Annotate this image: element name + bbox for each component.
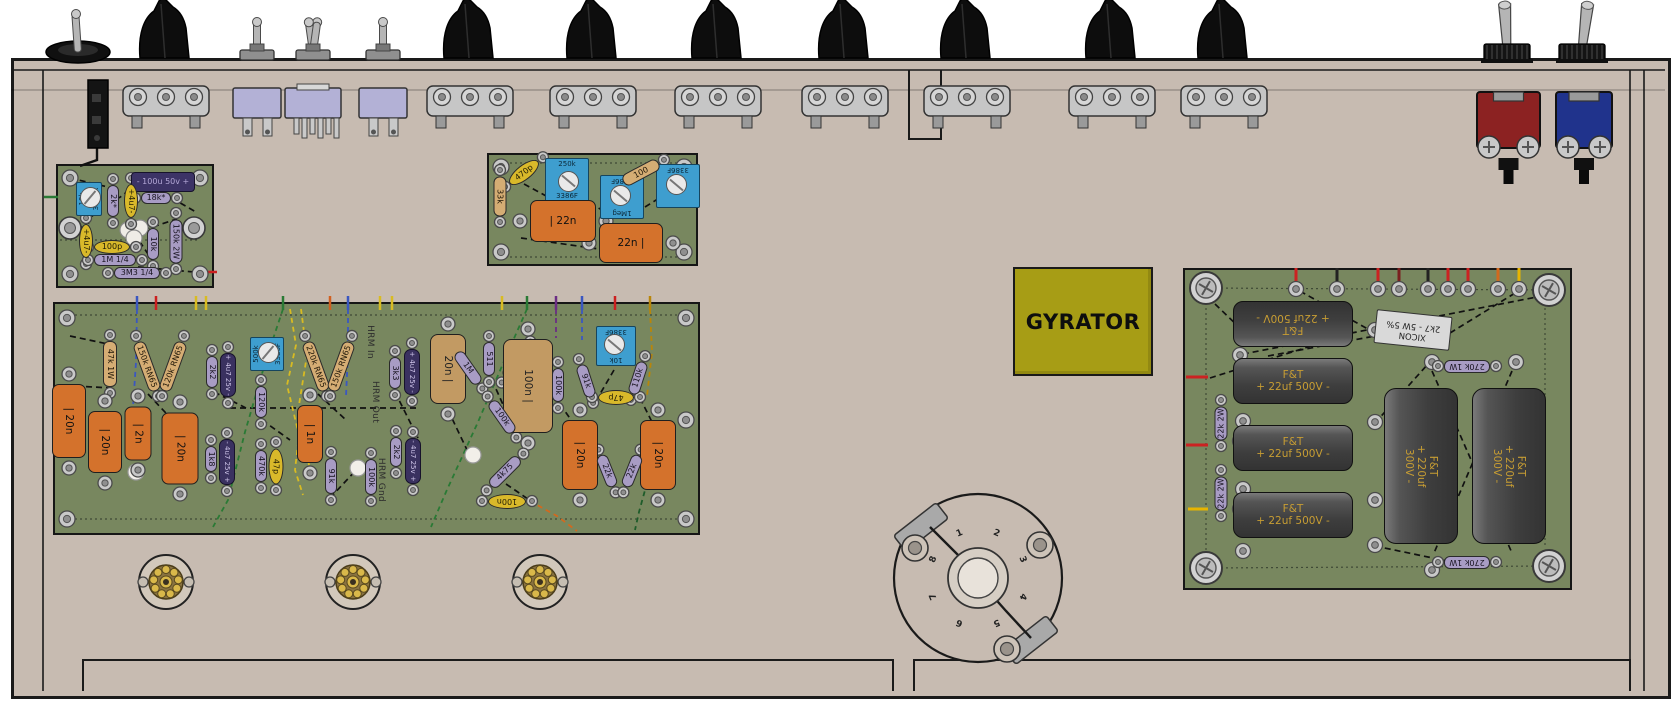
switch-leg [294,118,299,134]
eyelet-hole [621,490,626,495]
eyelet-hole [485,394,490,399]
eyelet-hole [307,470,313,476]
socket-pin [353,590,361,598]
eyelet-hole [174,211,179,216]
socket-key [350,579,356,585]
eyelet-hole [643,354,648,359]
eyelet-hole [1372,327,1379,334]
eyelet-hole [328,394,333,399]
eyelet-hole [86,258,91,263]
eyelet-hole [1237,352,1244,359]
pot-foot [1078,116,1088,128]
chicken-head-knob [444,0,493,58]
eyelet-hole [445,321,451,327]
pot-foot [132,116,142,128]
eyelet-hole [129,222,134,227]
eyelet-hole [1436,560,1441,565]
eyelet-hole [1372,497,1379,504]
eyelet-hole [655,407,661,413]
pot-foot [991,116,1001,128]
pot-lug-hole [1137,94,1144,101]
eyelet-hole [259,378,264,383]
toggle-tip [379,18,388,27]
post-tip [1504,170,1514,184]
eyelet-hole [393,349,398,354]
socket-pin [548,576,556,584]
eyelet-hole [393,393,398,398]
eyelet-hole [525,326,531,332]
eyelet-hole [209,476,214,481]
eyelet-hole [108,333,113,338]
hookup-wire [506,484,528,499]
eyelet-hole [655,497,661,503]
socket-pin [532,590,540,598]
eyelet-hole [1219,398,1224,403]
chicken-head-knob [1198,0,1247,58]
amp-chassis-layout: 12345678 - 100u 50v +10k3296X2k*+4u7-18k… [0,0,1676,721]
eyelet-hole [410,341,415,346]
eyelet-hole [1516,286,1523,293]
socket-pin [540,590,548,598]
pot-foot [684,116,694,128]
hookup-wire [590,203,607,213]
eyelet-hole [106,271,111,276]
chicken-head-knob [941,0,990,58]
eyelet-hole [274,440,279,445]
switch-leg [326,118,331,134]
eyelet-hole [503,184,508,189]
pot-lug-hole [992,94,999,101]
post-hex [1499,158,1519,170]
switch-body [233,88,281,118]
pot-lug-hole [814,94,821,101]
eyelet-hole [210,392,215,397]
pot-foot [436,116,446,128]
eyelet-hole [1219,514,1224,519]
toggle-washer [1556,59,1608,63]
pot-foot [1248,116,1258,128]
hookup-wire [1210,333,1352,378]
socket-pin [337,576,345,584]
eyelet-hole [102,398,108,404]
eyelet-hole [445,411,451,417]
eyelet-hole [497,248,504,255]
eyelet-hole [680,163,687,170]
eyelet-hole [577,497,583,503]
eyelet-hole [134,333,139,338]
post-bracket [1569,92,1599,101]
switch-body [285,88,341,118]
gyrator-label: GYRATOR [1013,267,1153,376]
pot-foot [1136,116,1146,128]
toggle-collar [250,44,264,51]
eyelet-hole [411,488,416,493]
eyelet-hole [576,357,581,362]
eyelet-hole [487,380,492,385]
eyelet-hole [133,196,138,201]
bottom-left-tab [83,660,893,691]
switch-leg [334,118,339,138]
hookup-wire [492,380,518,438]
pot-foot [494,116,504,128]
pot-foot [811,116,821,128]
socket-pin [360,584,368,592]
eyelet-hole [259,422,264,427]
toggle-tip [253,18,262,27]
jack-hole [94,135,100,141]
wiring-overlay: 12345678 [0,0,1676,721]
signal-wire [346,309,348,396]
eyelet-hole [1495,286,1502,293]
jack-wire [80,148,97,166]
eyelet-hole [1372,542,1379,549]
socket-pin [154,568,162,576]
eyelet-hole [480,386,485,391]
eyelet-hole [680,248,687,255]
pot-lug-hole [1249,94,1256,101]
eyelet-hole [369,451,374,456]
eyelet-hole [682,416,689,423]
eyelet-hole [66,371,72,377]
switch-leg-hole [265,130,270,135]
post-tip [1579,170,1589,184]
toggle-tip [304,18,313,27]
eyelet-hole [66,465,72,471]
eyelet-hole [164,271,169,276]
eyelet-hole [1465,286,1472,293]
toggle-washer [1481,59,1533,63]
pot-lug-hole [743,94,750,101]
eyelet-hole [111,221,116,226]
chicken-head-knob [1086,0,1135,58]
socket-screw [558,577,568,587]
pot-lug-hole [1109,94,1116,101]
eyelet-hole [498,168,503,173]
socket-key [537,579,543,585]
hookup-wire [645,197,661,207]
eyelet-hole [66,174,73,181]
big-toggle-lever [1499,4,1513,47]
eyelet-hole [410,399,415,404]
jack-contact [92,116,101,124]
pot-foot [190,116,200,128]
eyelet-hole [259,442,264,447]
rotary-lug-hole [1001,643,1014,656]
eyelet-hole [1240,486,1247,493]
eyelet-hole [102,480,108,486]
eyelet-hole [174,267,179,272]
eyelet-hole [210,348,215,353]
socket-key [163,579,169,585]
switch-leg [302,118,307,138]
pot-lug-hole [439,94,446,101]
eyelet-hole [259,486,264,491]
socket-pin [174,576,182,584]
hookup-wire [70,336,108,344]
eyelet-hole [369,499,374,504]
pot-lug-hole [1221,94,1228,101]
eyelet-hole [682,314,689,321]
switch-leg-hole [391,130,396,135]
chicken-head-knob [819,0,868,58]
eyelet-hole [1219,444,1224,449]
eyelet-hole [226,345,231,350]
eyelet-hole [209,438,214,443]
eyelet-hole [1429,567,1436,574]
eyelet-hole [160,394,165,399]
eyelet-hole [225,489,230,494]
pot-lug-hole [842,94,849,101]
chicken-head-knob [140,0,189,58]
eyelet-hole [1240,548,1247,555]
rotary-hub-inner [958,558,998,598]
big-toggle-lever [1577,4,1594,47]
eyelet-hole [525,440,531,446]
pot-lug-hole [1193,94,1200,101]
eyelet-hole [177,399,183,405]
eyelet-hole [111,177,116,182]
post-hex [1574,158,1594,170]
eyelet-hole [329,498,334,503]
eyelet-hole [177,491,183,497]
signal-wire [530,501,577,531]
power-switch-tip [72,10,81,19]
pot-lug-hole [715,94,722,101]
eyelet-hole [63,314,70,321]
rotary-lug-hole [909,542,922,555]
pot-lug-hole [687,94,694,101]
eyelet-hole [225,431,230,436]
socket-pin [361,576,369,584]
chicken-head-knob [567,0,616,58]
eyelet-hole [540,155,545,160]
rotary-lug-hole [1034,539,1047,552]
eyelet-hole [135,467,141,473]
socket-pin [338,584,346,592]
pot-lug-hole [964,94,971,101]
pot-lug-hole [1081,94,1088,101]
hookup-wire [1432,371,1512,553]
eyelet-hole [1436,364,1441,369]
socket-pin [547,584,555,592]
eyelet-hole [1219,468,1224,473]
eyelet-hole [349,333,354,338]
socket-pin [166,590,174,598]
socket-pin [173,584,181,592]
eyelet-hole [1334,286,1341,293]
socket-screw [512,577,522,587]
eyelet-hole [528,339,533,344]
eyelet-hole [274,488,279,493]
eyelet-hole [517,218,523,224]
eyelet-hole [411,430,416,435]
pot-lug-hole [467,94,474,101]
socket-pin [524,576,532,584]
solder-blob [350,460,366,476]
eyelet-hole [556,360,561,365]
eyelet-hole [181,333,186,338]
switch-body [359,88,407,118]
socket-pin [349,566,357,574]
socket-pin [162,566,170,574]
socket-screw [371,577,381,587]
eyelet-hole [151,220,156,225]
eyelet-hole [1375,286,1382,293]
socket-pin [536,566,544,574]
socket-pin [357,568,365,576]
pot-foot [742,116,752,128]
eyelet-hole [514,435,519,440]
eyelet-hole [521,451,526,456]
eyelet-hole [487,334,492,339]
socket-pin [151,584,159,592]
socket-pin [341,568,349,576]
hookup-wire [1375,364,1428,423]
hookup-wire [1434,371,1512,553]
switch-leg [318,118,323,138]
eyelet-hole [1396,286,1403,293]
eyelet-hole [603,218,609,224]
socket-screw [184,577,194,587]
eyelet-hole [394,429,399,434]
pot-lug-hole [163,94,170,101]
eyelet-hole [66,270,73,277]
pot-foot [933,116,943,128]
eyelet-hole [498,220,503,225]
pot-lug-hole [590,94,597,101]
switch-leg-hole [245,130,250,135]
solder-blob [465,447,481,463]
eyelet-hole [530,499,535,504]
eyelet-hole [226,401,231,406]
eyelet-hole [590,395,595,400]
eyelet-hole [1494,560,1499,565]
pot-lug-hole [562,94,569,101]
eyelet-hole [596,447,601,452]
eyelet-hole [140,258,145,263]
eyelet-hole [616,182,621,187]
pot-foot [617,116,627,128]
hookup-wire [524,184,548,197]
eyelet-hole [556,406,561,411]
socket-pin [525,584,533,592]
jack-contact [92,94,101,102]
socket-pin [528,568,536,576]
pot-foot [869,116,879,128]
eyelet-hole [1240,330,1247,337]
eyelet-hole [135,393,141,399]
hookup-wire [600,370,614,394]
toggle-collar [306,44,320,51]
eyelet-hole [63,515,70,522]
eyelet-hole [451,345,456,350]
eyelet-hole [329,450,334,455]
pot-lug-hole [191,94,198,101]
socket-pin [150,576,158,584]
eyelet-hole [1293,286,1300,293]
socket-pin [170,568,178,576]
eyelet-hole [1237,438,1244,445]
eyelet-hole [129,176,134,181]
socket-screw [325,577,335,587]
switch-leg-hole [371,130,376,135]
pot-lug-hole [870,94,877,101]
pot-lug-hole [495,94,502,101]
eyelet-hole [303,333,308,338]
eyelet-hole [394,471,399,476]
grommet-hole [65,223,76,234]
gyrator-text: GYRATOR [1026,310,1141,334]
chicken-head-knob [692,0,741,58]
big-toggle-tip [1498,1,1510,10]
pot-lug-hole [135,94,142,101]
eyelet-hole [1240,418,1247,425]
eyelet-hole [661,157,666,162]
eyelet-hole [628,397,633,402]
eyelet-hole [1445,286,1452,293]
toggle-collar [376,44,390,51]
eyelet-hole [175,196,180,201]
eyelet-hole [1237,506,1244,513]
eyelet-hole [134,245,139,250]
socket-pin [158,590,166,598]
eyelet-hole [577,407,583,413]
pot-lug-hole [618,94,625,101]
eyelet-hole [1425,286,1432,293]
hookup-wire [650,228,661,242]
switch-leg [310,118,315,134]
eyelet-hole [499,380,504,385]
eyelet-hole [196,270,203,277]
socket-screw [138,577,148,587]
eyelet-hole [151,264,156,269]
eyelet-hole [670,240,676,246]
pot-foot [1190,116,1200,128]
eyelet-hole [86,245,91,250]
eyelet-hole [84,216,89,221]
pot-foot [559,116,569,128]
post-bracket [1494,92,1524,101]
grommet-hole [189,223,200,234]
eyelet-hole [1513,359,1520,366]
eyelet-hole [638,447,643,452]
eyelet-hole [480,499,485,504]
hookup-wire [74,386,112,388]
bottom-right-tab [914,660,1630,691]
eyelet-hole [1494,364,1499,369]
eyelet-hole [586,240,592,246]
socket-pin [544,568,552,576]
eyelet-hole [1372,419,1379,426]
pot-lug-hole [936,94,943,101]
switch-frame [297,84,329,90]
eyelet-hole [638,395,643,400]
eyelet-hole [682,515,689,522]
eyelet-hole [484,488,489,493]
eyelet-hole [307,392,313,398]
eyelet-hole [196,174,203,181]
socket-pin [345,590,353,598]
